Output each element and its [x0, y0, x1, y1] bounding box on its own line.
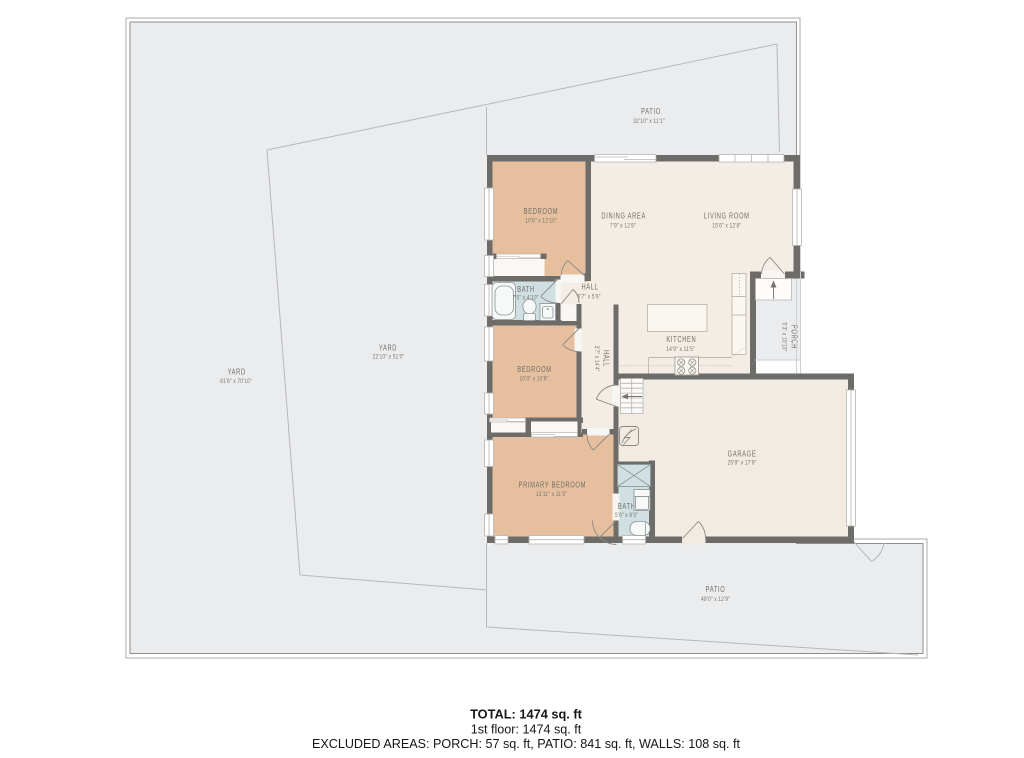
svg-text:25’9" x 17’9": 25’9" x 17’9"	[728, 460, 757, 467]
svg-text:HALL: HALL	[601, 350, 609, 367]
svg-text:PORCH: PORCH	[789, 325, 797, 349]
svg-text:5’3" x 10’10": 5’3" x 10’10"	[780, 323, 787, 352]
svg-text:EXCLUDED AREAS: PORCH: 57 sq.: EXCLUDED AREAS: PORCH: 57 sq. ft, PATIO:…	[312, 737, 741, 751]
svg-text:PRIMARY BEDROOM: PRIMARY BEDROOM	[519, 482, 586, 490]
svg-text:13’11" x 11’5": 13’11" x 11’5"	[536, 491, 567, 498]
svg-text:5’9" x 8’0": 5’9" x 8’0"	[615, 512, 638, 519]
svg-text:LIVING ROOM: LIVING ROOM	[704, 213, 750, 221]
svg-text:GARAGE: GARAGE	[728, 451, 757, 459]
svg-text:7’9" x 12’8": 7’9" x 12’8"	[610, 223, 636, 230]
svg-text:HALL: HALL	[581, 284, 598, 292]
svg-text:14’9" x 11’5": 14’9" x 11’5"	[666, 346, 695, 353]
svg-text:7’5" x 4’10": 7’5" x 4’10"	[512, 295, 538, 302]
svg-text:PATIO: PATIO	[706, 587, 726, 595]
svg-text:BATH: BATH	[618, 503, 636, 511]
svg-text:32’10" x 11’1": 32’10" x 11’1"	[633, 118, 664, 125]
svg-text:BEDROOM: BEDROOM	[517, 366, 551, 374]
svg-text:15’6" x 12’8": 15’6" x 12’8"	[712, 223, 741, 230]
svg-text:49’0" x 12’9": 49’0" x 12’9"	[701, 597, 730, 604]
svg-text:3’7" x 14’4": 3’7" x 14’4"	[593, 345, 600, 371]
svg-text:YARD: YARD	[379, 345, 397, 353]
svg-text:DINING AREA: DINING AREA	[601, 213, 646, 221]
svg-text:22’10" x 51’0": 22’10" x 51’0"	[373, 354, 405, 361]
svg-text:BEDROOM: BEDROOM	[524, 208, 558, 216]
svg-text:KITCHEN: KITCHEN	[666, 336, 696, 344]
svg-text:PATIO: PATIO	[641, 109, 661, 117]
svg-text:BATH: BATH	[517, 286, 535, 294]
svg-text:YARD: YARD	[228, 369, 246, 377]
svg-text:10’8" x 12’10": 10’8" x 12’10"	[525, 218, 557, 225]
svg-text:6’7" x 5’6": 6’7" x 5’6"	[577, 294, 600, 301]
svg-text:81’6" x 70’10": 81’6" x 70’10"	[220, 378, 252, 385]
svg-text:10’0" x 10’6": 10’0" x 10’6"	[520, 376, 549, 383]
svg-text:TOTAL: 1474 sq. ft: TOTAL: 1474 sq. ft	[470, 707, 583, 722]
svg-text:1st floor: 1474 sq. ft: 1st floor: 1474 sq. ft	[471, 723, 582, 737]
